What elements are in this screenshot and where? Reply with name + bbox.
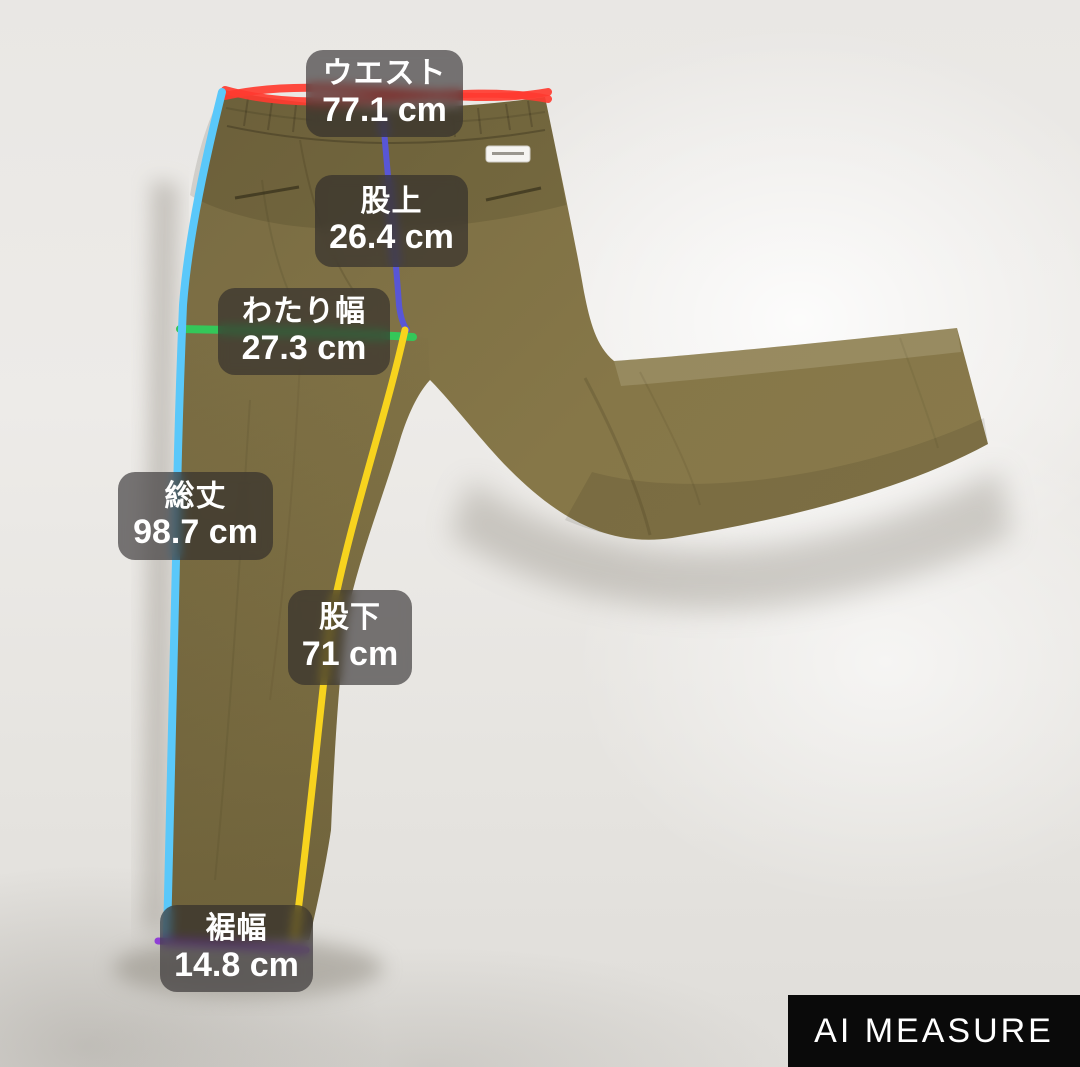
measurement-name: 股上	[361, 186, 423, 218]
measurement-name: 総丈	[165, 481, 227, 513]
measurement-label-thigh-width: わたり幅 27.3 cm	[218, 288, 390, 375]
brand-tag	[486, 146, 530, 162]
measurement-name: 裾幅	[206, 913, 268, 945]
measurement-label-hem-width: 裾幅 14.8 cm	[160, 905, 313, 992]
measurement-value: 27.3 cm	[242, 331, 367, 367]
measurement-label-waist: ウエスト 77.1 cm	[306, 50, 463, 137]
measurement-value: 71 cm	[302, 637, 398, 673]
measurement-value: 77.1 cm	[322, 93, 447, 129]
measurement-value: 14.8 cm	[174, 948, 299, 984]
measurement-label-rise: 股上 26.4 cm	[315, 175, 468, 267]
measurement-name: 股下	[319, 602, 381, 634]
pants-measurement-photo: ウエスト 77.1 cm 股上 26.4 cm わたり幅 27.3 cm 総丈 …	[0, 0, 1080, 1067]
ai-measure-watermark: AI MEASURE	[788, 995, 1080, 1067]
measurement-name: わたり幅	[242, 296, 366, 328]
measurement-name: ウエスト	[323, 58, 447, 90]
ai-measure-label: AI MEASURE	[814, 1012, 1054, 1051]
measurement-label-total-length: 総丈 98.7 cm	[118, 472, 273, 560]
measurement-label-inseam: 股下 71 cm	[288, 590, 412, 685]
measurement-value: 98.7 cm	[133, 515, 258, 551]
measurement-value: 26.4 cm	[329, 220, 454, 256]
